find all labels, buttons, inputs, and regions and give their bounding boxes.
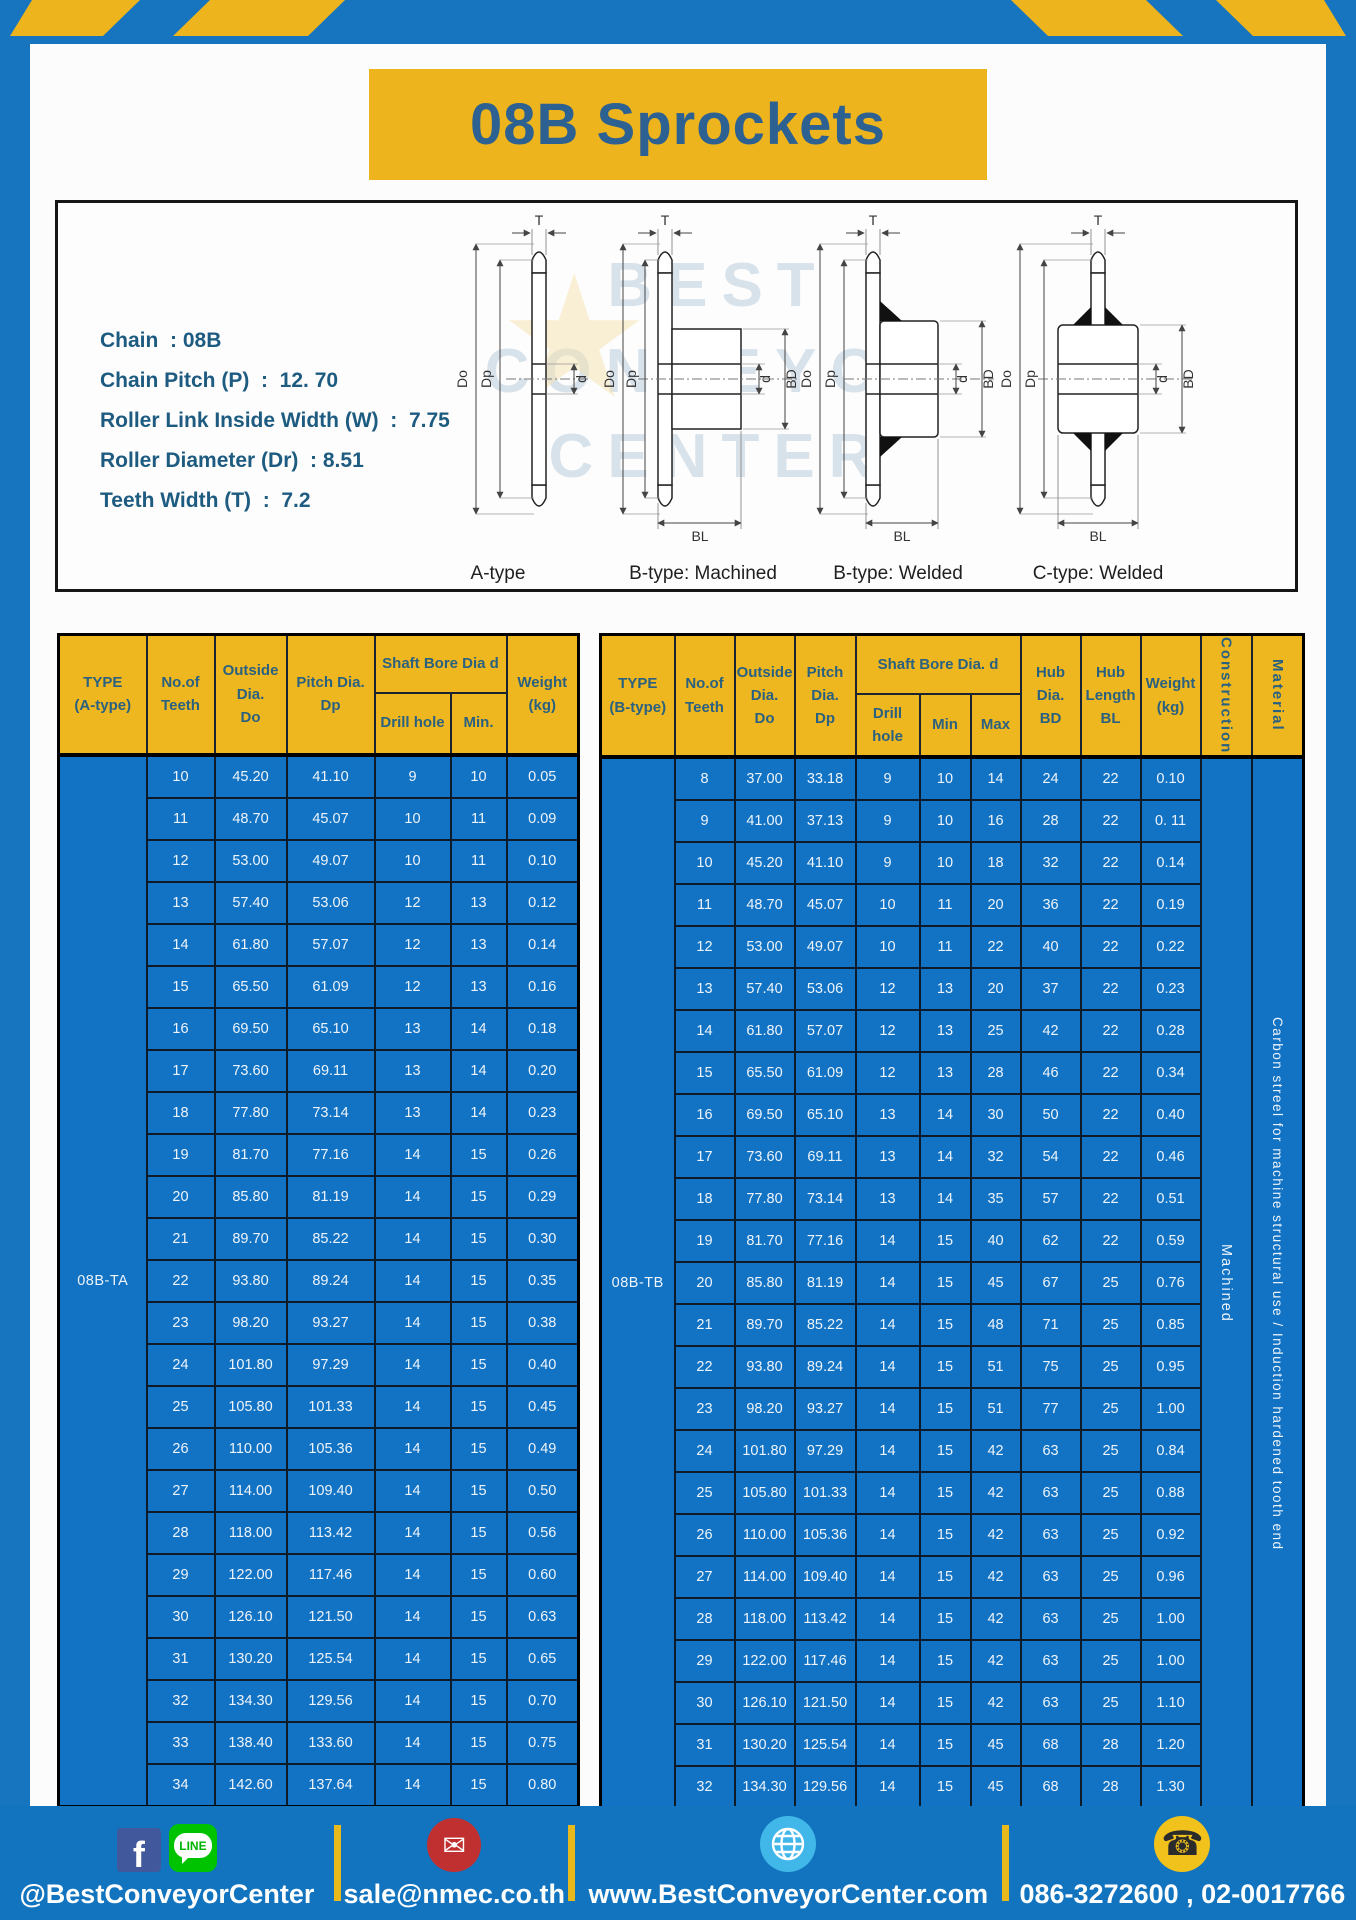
data-cell: 49.07 [287,840,375,882]
data-cell: 122.00 [735,1640,795,1682]
svg-text:Do: Do [601,370,617,388]
data-cell: 93.80 [215,1260,287,1302]
data-cell: 0.20 [507,1050,579,1092]
col-header-shaft-bore: Shaft Bore Dia. d [856,635,1021,694]
data-cell: 15 [451,1134,507,1176]
data-cell: 26 [147,1428,215,1470]
data-cell: 61.80 [215,924,287,966]
data-cell: 26 [675,1514,735,1556]
data-cell: 10 [675,842,735,884]
facebook-icon[interactable]: f [117,1828,161,1872]
data-cell: 32 [675,1766,735,1809]
data-cell: 22 [1081,1178,1141,1220]
data-cell: 42 [971,1682,1021,1724]
data-cell: 63 [1021,1472,1081,1514]
line-icon[interactable]: LINE [169,1824,217,1872]
data-cell: 125.54 [287,1638,375,1680]
data-cell: 31 [675,1724,735,1766]
data-cell: 15 [675,1052,735,1094]
c-type-welded-drawing-icon: T Do Dp d BD [988,213,1208,549]
data-cell: 0.75 [507,1722,579,1764]
data-cell: 9 [856,842,920,884]
col-header-drill-hole: Drill hole [856,694,920,757]
data-cell: 51 [971,1388,1021,1430]
table-row: 30126.10121.5014154263251.10 [601,1682,1304,1724]
data-cell: 93.80 [735,1346,795,1388]
data-cell: 65.10 [795,1094,856,1136]
data-cell: 85.80 [735,1262,795,1304]
data-cell: 13 [375,1008,451,1050]
col-header-construction: Construction [1201,635,1252,758]
data-cell: 15 [451,1218,507,1260]
table-row: 26110.00105.3614154263250.92 [601,1514,1304,1556]
data-cell: 25 [1081,1388,1141,1430]
data-cell: 15 [451,1428,507,1470]
data-cell: 24 [1021,757,1081,800]
data-cell: 15 [451,1680,507,1722]
data-cell: 15 [451,1764,507,1807]
data-cell: 14 [451,1008,507,1050]
svg-text:BL: BL [1089,528,1106,544]
data-cell: 42 [1021,1010,1081,1052]
data-cell: 37.13 [795,800,856,842]
data-cell: 10 [451,755,507,798]
data-cell: 11 [920,926,971,968]
data-cell: 14 [451,1050,507,1092]
data-cell: 77.80 [735,1178,795,1220]
data-cell: 25 [1081,1682,1141,1724]
data-cell: 113.42 [795,1598,856,1640]
data-cell: 42 [971,1472,1021,1514]
data-cell: 22 [1081,842,1141,884]
data-cell: 0.50 [507,1470,579,1512]
data-cell: 14 [920,1178,971,1220]
data-cell: 22 [1081,1136,1141,1178]
data-cell: 22 [1081,1094,1141,1136]
data-cell: 63 [1021,1514,1081,1556]
vertical-text-cell: Machined [1201,757,1252,1809]
table-row: 31130.20125.5414154568281.20 [601,1724,1304,1766]
data-cell: 14 [375,1596,451,1638]
data-cell: 0.51 [1141,1178,1201,1220]
col-header-material: Material [1252,635,1304,758]
data-cell: 27 [675,1556,735,1598]
data-cell: 14 [375,1680,451,1722]
data-cell: 22 [1081,926,1141,968]
data-cell: 45 [971,1766,1021,1809]
data-cell: 117.46 [795,1640,856,1682]
data-cell: 29 [675,1640,735,1682]
diagram-c-type-welded: T Do Dp d BD [988,213,1208,585]
diagram-panel: ★ BEST CONVEYOR CENTER Chain : 08B Chain… [55,200,1298,592]
data-cell: 37.00 [735,757,795,800]
data-cell: 15 [920,1766,971,1809]
data-cell: 14 [451,1092,507,1134]
svg-text:T: T [869,213,878,228]
data-cell: 93.27 [287,1302,375,1344]
data-cell: 13 [856,1178,920,1220]
data-cell: 117.46 [287,1554,375,1596]
table-row: 1148.7045.0710112036220.19 [601,884,1304,926]
data-cell: 101.80 [215,1344,287,1386]
data-cell: 110.00 [215,1428,287,1470]
data-cell: 14 [675,1010,735,1052]
data-cell: 0.63 [507,1596,579,1638]
data-cell: 15 [920,1514,971,1556]
data-cell: 22 [1081,1220,1141,1262]
data-cell: 121.50 [795,1682,856,1724]
svg-text:BD: BD [1180,369,1196,388]
data-cell: 13 [920,968,971,1010]
data-cell: 48 [971,1304,1021,1346]
svg-text:T: T [661,213,670,228]
footer-divider [334,1825,341,1901]
table-row: 1045.2041.109101832220.14 [601,842,1304,884]
col-header-outside-dia: Outside Dia. Do [215,635,287,755]
svg-text:Dp: Dp [822,370,838,388]
line-icon-label: LINE [174,1833,212,1858]
data-cell: 109.40 [287,1470,375,1512]
data-cell: 14 [375,1260,451,1302]
website-url[interactable]: www.BestConveyorCenter.com [588,1879,988,1910]
col-header-hub-dia: Hub Dia. BD [1021,635,1081,758]
data-cell: 0.14 [1141,842,1201,884]
data-cell: 11 [920,884,971,926]
data-cell: 37 [1021,968,1081,1010]
data-cell: 97.29 [795,1430,856,1472]
data-cell: 0.65 [507,1638,579,1680]
table-b-header: TYPE (B-type) No.of Teeth Outside Dia. D… [601,635,1304,758]
col-header-teeth: No.of Teeth [147,635,215,755]
data-cell: 20 [971,884,1021,926]
data-cell: 45.07 [795,884,856,926]
data-cell: 25 [1081,1262,1141,1304]
col-header-weight: Weight (kg) [507,635,579,755]
svg-text:BL: BL [691,528,708,544]
data-cell: 14 [856,1346,920,1388]
data-cell: 15 [920,1556,971,1598]
data-cell: 0.10 [507,840,579,882]
data-cell: 21 [675,1304,735,1346]
table-row: 1461.8057.0712132542220.28 [601,1010,1304,1052]
data-cell: 41.00 [735,800,795,842]
data-cell: 57.40 [735,968,795,1010]
data-cell: 65.50 [215,966,287,1008]
data-cell: 14 [375,1344,451,1386]
table-row: 08B-TA1045.2041.109100.05 [59,755,579,798]
data-cell: 22 [147,1260,215,1302]
data-cell: 142.60 [215,1764,287,1807]
data-cell: 13 [675,968,735,1010]
data-cell: 25 [147,1386,215,1428]
data-cell: 81.19 [795,1262,856,1304]
data-cell: 138.40 [215,1722,287,1764]
table-row: 1669.5065.1013143050220.40 [601,1094,1304,1136]
table-a-body: 08B-TA1045.2041.109100.051148.7045.07101… [59,755,579,1807]
data-cell: 0.28 [1141,1010,1201,1052]
data-cell: 57.40 [215,882,287,924]
table-row: 29122.00117.4614154263251.00 [601,1640,1304,1682]
svg-text:BL: BL [893,528,910,544]
data-cell: 81.70 [735,1220,795,1262]
data-cell: 9 [375,755,451,798]
diagram-b-type-welded: T Do Dp d BD [788,213,1008,585]
data-cell: 40 [971,1220,1021,1262]
data-cell: 57 [1021,1178,1081,1220]
data-cell: 1.30 [1141,1766,1201,1809]
data-cell: 28 [675,1598,735,1640]
data-cell: 25 [1081,1514,1141,1556]
data-cell: 10 [856,884,920,926]
data-cell: 0.19 [1141,884,1201,926]
data-cell: 14 [920,1136,971,1178]
data-cell: 41.10 [287,755,375,798]
data-cell: 22 [1081,884,1141,926]
data-cell: 10 [920,757,971,800]
data-cell: 0.16 [507,966,579,1008]
globe-icon[interactable] [760,1816,816,1872]
data-cell: 65.50 [735,1052,795,1094]
data-cell: 14 [375,1386,451,1428]
data-cell: 19 [147,1134,215,1176]
data-cell: 22 [1081,968,1141,1010]
data-cell: 0.85 [1141,1304,1201,1346]
data-cell: 49.07 [795,926,856,968]
data-cell: 0.30 [507,1218,579,1260]
data-cell: 63 [1021,1598,1081,1640]
data-cell: 15 [920,1388,971,1430]
data-cell: 118.00 [215,1512,287,1554]
data-cell: 10 [375,840,451,882]
data-cell: 14 [856,1430,920,1472]
data-cell: 68 [1021,1766,1081,1809]
data-cell: 48.70 [735,884,795,926]
table-row: 24101.8097.2914154263250.84 [601,1430,1304,1472]
data-cell: 73.14 [795,1178,856,1220]
data-cell: 42 [971,1514,1021,1556]
footer-social-section: f LINE @BestConveyorCenter [0,1806,334,1920]
data-cell: 11 [147,798,215,840]
data-cell: 14 [375,1470,451,1512]
data-cell: 15 [451,1596,507,1638]
data-cell: 33 [147,1722,215,1764]
data-cell: 14 [856,1640,920,1682]
data-cell: 14 [920,1094,971,1136]
vertical-text-cell: Carbon streel for machine structural use… [1252,757,1304,1809]
data-cell: 14 [375,1638,451,1680]
data-cell: 71 [1021,1304,1081,1346]
page-title: 08B Sprockets [470,91,886,158]
data-cell: 53.06 [795,968,856,1010]
data-cell: 0.60 [507,1554,579,1596]
email-address[interactable]: sale@nmec.co.th [344,1879,565,1910]
data-cell: 114.00 [735,1556,795,1598]
data-cell: 42 [971,1598,1021,1640]
data-cell: 0.34 [1141,1052,1201,1094]
data-cell: 42 [971,1430,1021,1472]
email-icon[interactable]: ✉ [427,1818,481,1872]
data-cell: 0.40 [1141,1094,1201,1136]
data-cell: 81.70 [215,1134,287,1176]
phone-icon[interactable]: ☎ [1154,1816,1210,1872]
caption-c-type-welded: C-type: Welded [988,563,1208,585]
data-cell: 62 [1021,1220,1081,1262]
data-cell: 20 [147,1176,215,1218]
data-cell: 18 [147,1092,215,1134]
table-row: 1773.6069.1113143254220.46 [601,1136,1304,1178]
data-cell: 22 [1081,757,1141,800]
data-cell: 13 [451,882,507,924]
data-cell: 0.22 [1141,926,1201,968]
data-cell: 12 [856,968,920,1010]
data-cell: 69.50 [215,1008,287,1050]
data-cell: 20 [675,1262,735,1304]
data-cell: 15 [451,1722,507,1764]
col-header-teeth: No.of Teeth [675,635,735,758]
data-cell: 85.22 [795,1304,856,1346]
data-cell: 15 [920,1640,971,1682]
data-cell: 20 [971,968,1021,1010]
data-cell: 45.07 [287,798,375,840]
data-cell: 0.10 [1141,757,1201,800]
data-cell: 0.45 [507,1386,579,1428]
data-cell: 121.50 [287,1596,375,1638]
phone-numbers[interactable]: 086-3272600 , 02-0017766 [1020,1879,1346,1910]
data-cell: 25 [971,1010,1021,1052]
data-cell: 113.42 [287,1512,375,1554]
data-cell: 12 [375,966,451,1008]
footer-divider [568,1825,575,1901]
data-cell: 77.80 [215,1092,287,1134]
data-cell: 13 [451,966,507,1008]
data-cell: 61.09 [795,1052,856,1094]
data-cell: 0.23 [1141,968,1201,1010]
data-cell: 28 [1081,1724,1141,1766]
data-cell: 81.19 [287,1176,375,1218]
table-row: 1357.4053.0612132037220.23 [601,968,1304,1010]
data-cell: 14 [856,1556,920,1598]
data-cell: 34 [147,1764,215,1807]
data-cell: 32 [971,1136,1021,1178]
data-cell: 109.40 [795,1556,856,1598]
data-cell: 15 [920,1304,971,1346]
data-cell: 46 [1021,1052,1081,1094]
data-cell: 0.14 [507,924,579,966]
data-cell: 0.29 [507,1176,579,1218]
data-cell: 63 [1021,1682,1081,1724]
data-cell: 16 [147,1008,215,1050]
table-row: 2085.8081.1914154567250.76 [601,1262,1304,1304]
data-cell: 0.18 [507,1008,579,1050]
data-cell: 0.95 [1141,1346,1201,1388]
data-cell: 130.20 [215,1638,287,1680]
table-b-body: 08B-TB837.0033.189101424220.10MachinedCa… [601,757,1304,1809]
data-cell: 10 [147,755,215,798]
footer-email-section: ✉ sale@nmec.co.th [341,1806,568,1920]
data-cell: 12 [375,882,451,924]
data-cell: 15 [147,966,215,1008]
data-cell: 0.59 [1141,1220,1201,1262]
data-cell: 15 [920,1472,971,1514]
b-type-welded-drawing-icon: T Do Dp d BD [788,213,1008,549]
data-cell: 12 [375,924,451,966]
data-cell: 48.70 [215,798,287,840]
data-cell: 125.54 [795,1724,856,1766]
data-cell: 14 [856,1682,920,1724]
data-cell: 101.80 [735,1430,795,1472]
data-cell: 14 [375,1176,451,1218]
data-cell: 28 [1081,1766,1141,1809]
data-cell: 98.20 [215,1302,287,1344]
data-cell: 15 [920,1262,971,1304]
data-cell: 12 [147,840,215,882]
data-cell: 22 [1081,800,1141,842]
data-cell: 51 [971,1346,1021,1388]
data-cell: 57.07 [287,924,375,966]
data-cell: 25 [1081,1640,1141,1682]
data-cell: 0. 11 [1141,800,1201,842]
data-cell: 14 [375,1764,451,1807]
table-row: 28118.00113.4214154263251.00 [601,1598,1304,1640]
data-cell: 28 [147,1512,215,1554]
data-cell: 14 [856,1724,920,1766]
type-label-cell: 08B-TB [601,757,675,1809]
data-cell: 14 [856,1304,920,1346]
col-header-hub-length: Hub Length BL [1081,635,1141,758]
data-cell: 28 [1021,800,1081,842]
data-cell: 15 [451,1386,507,1428]
data-cell: 40 [1021,926,1081,968]
data-cell: 13 [920,1010,971,1052]
data-cell: 30 [675,1682,735,1724]
data-cell: 98.20 [735,1388,795,1430]
data-cell: 14 [375,1554,451,1596]
data-cell: 0.49 [507,1428,579,1470]
data-cell: 15 [920,1220,971,1262]
data-cell: 15 [451,1260,507,1302]
data-cell: 25 [1081,1472,1141,1514]
data-cell: 1.00 [1141,1598,1201,1640]
data-cell: 105.80 [735,1472,795,1514]
data-cell: 13 [375,1050,451,1092]
data-cell: 17 [675,1136,735,1178]
data-cell: 126.10 [735,1682,795,1724]
caption-a-type: A-type [388,563,608,585]
data-cell: 14 [856,1598,920,1640]
data-cell: 89.70 [735,1304,795,1346]
data-cell: 8 [675,757,735,800]
data-cell: 14 [856,1514,920,1556]
data-cell: 77.16 [795,1220,856,1262]
data-cell: 14 [856,1262,920,1304]
data-cell: 0.92 [1141,1514,1201,1556]
data-cell: 134.30 [215,1680,287,1722]
data-cell: 0.88 [1141,1472,1201,1514]
col-header-pitch-dia: Pitch Dia. Dp [795,635,856,758]
social-handle[interactable]: @BestConveyorCenter [19,1879,314,1910]
b-type-machined-drawing-icon: T Do Dp d BD [593,213,813,549]
data-cell: 89.24 [795,1346,856,1388]
data-cell: 97.29 [287,1344,375,1386]
data-cell: 15 [451,1302,507,1344]
col-header-pitch-dia: Pitch Dia. Dp [287,635,375,755]
data-cell: 126.10 [215,1596,287,1638]
data-cell: 14 [375,1722,451,1764]
table-row: 1981.7077.1614154062220.59 [601,1220,1304,1262]
data-cell: 31 [147,1638,215,1680]
data-cell: 129.56 [795,1766,856,1809]
data-cell: 25 [1081,1346,1141,1388]
